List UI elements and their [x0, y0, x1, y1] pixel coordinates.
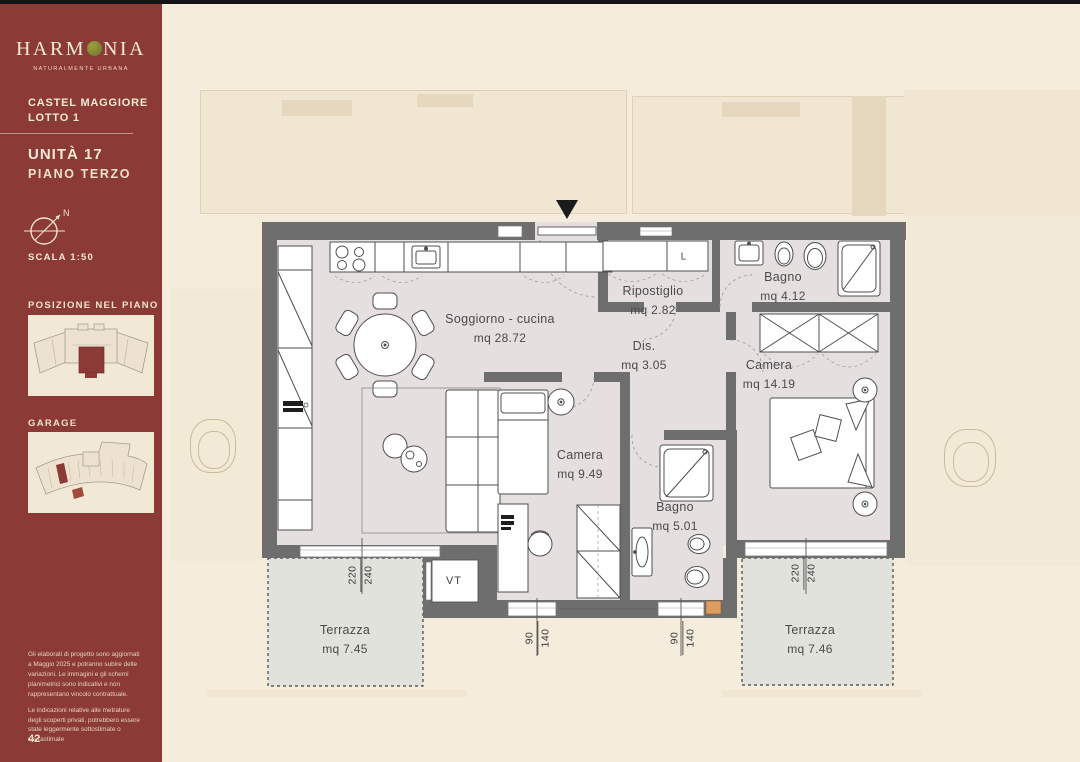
room-area: mq 28.72 — [445, 329, 555, 348]
garage-thumbnail — [28, 432, 154, 513]
disclaimer-paragraph-1: Gli elaborati di progetto sono aggiornat… — [28, 650, 142, 700]
double-bed — [770, 398, 874, 488]
tech-slot — [426, 562, 431, 600]
room-name: Bagno — [652, 498, 697, 517]
section-title-position: POSIZIONE NEL PIANO — [28, 300, 159, 311]
compass-icon: N — [22, 204, 76, 252]
floorplan-canvas: Soggiorno - cucina mq 28.72 Ripostiglio … — [162, 4, 1080, 762]
room-area: mq 2.82 — [623, 301, 684, 320]
room-area: mq 5.01 — [652, 517, 697, 536]
brand-logo: HARMNIA — [0, 38, 162, 61]
dim-value: 140 — [540, 628, 553, 647]
room-label-soggiorno: Soggiorno - cucina mq 28.72 — [445, 310, 555, 348]
wall-left — [262, 240, 277, 558]
unit-title: UNITÀ 17 — [28, 146, 103, 163]
room-label-bagno-1: Bagno mq 4.12 — [760, 268, 805, 306]
toilet-icon-2 — [685, 567, 709, 588]
position-thumbnail — [28, 315, 154, 396]
unit-floor: PIANO TERZO — [28, 167, 131, 181]
room-area: mq 3.05 — [621, 356, 666, 375]
room-label-ripostiglio: Ripostiglio mq 2.82 — [623, 282, 684, 320]
highlighted-unit — [79, 347, 104, 373]
entrance-door-leaf — [538, 227, 596, 235]
room-label-terrazza-2: Terrazza mq 7.46 — [785, 621, 835, 659]
dimension-label-left-window: 220 240 — [346, 558, 375, 592]
dim-rule — [538, 621, 539, 655]
project-name-line2: LOTTO 1 — [28, 111, 148, 126]
room-name: Bagno — [760, 268, 805, 287]
sofa — [446, 390, 500, 532]
desk — [498, 504, 528, 592]
window-left-220 — [300, 546, 440, 557]
dim-value: 220 — [346, 565, 359, 584]
highlighted-garage-spot-2 — [72, 487, 84, 499]
brand-logo-left: HARM — [16, 38, 86, 60]
dim-value: 90 — [523, 632, 536, 645]
brand-logo-right: NIA — [103, 38, 146, 60]
dim-value: 240 — [806, 563, 819, 582]
position-mini-plan — [28, 315, 154, 396]
disclaimer-paragraph-2: Le indicazioni relative alle metrature d… — [28, 706, 142, 746]
room-label-disimpegno: Dis. mq 3.05 — [621, 337, 666, 375]
room-label-camera-2: Camera mq 9.49 — [557, 446, 603, 484]
window-bottom-90-left — [508, 602, 556, 616]
floorplan-drawing — [162, 4, 1080, 762]
dim-rule — [361, 558, 362, 592]
desk-chair — [528, 532, 552, 556]
scale-label: SCALA 1:50 — [28, 252, 94, 263]
toilet-icon — [804, 243, 826, 270]
sink-icon-2 — [632, 528, 652, 576]
bedroom-1-furniture — [760, 314, 878, 516]
top-border — [0, 0, 1080, 4]
dimension-label-bottom-right-window: 90 140 — [668, 621, 697, 655]
dimension-label-bottom-left-window: 90 140 — [523, 621, 552, 655]
garage-mini-plan — [28, 432, 154, 513]
room-area: mq 7.46 — [785, 640, 835, 659]
room-label-terrazza-1: Terrazza mq 7.45 — [320, 621, 370, 659]
room-area: mq 14.19 — [743, 375, 795, 394]
shower-icon-2 — [660, 445, 713, 501]
room-name: Dis. — [621, 337, 666, 356]
kitchen-sink-icon — [412, 246, 440, 268]
tall-cabinets — [278, 246, 312, 530]
disclaimer-text: Gli elaborati di progetto sono aggiornat… — [28, 650, 142, 751]
bidet-icon — [775, 242, 793, 266]
dimension-label-right-window: 220 240 — [789, 556, 818, 590]
section-title-garage: GARAGE — [28, 418, 78, 429]
dim-value: 220 — [789, 563, 802, 582]
dim-rule — [683, 621, 684, 655]
shower-icon — [838, 241, 880, 296]
room-area: mq 9.49 — [557, 465, 603, 484]
dim-value: 240 — [363, 565, 376, 584]
room-name: Camera — [557, 446, 603, 465]
compass-north-label: N — [63, 208, 70, 218]
olive-icon — [87, 41, 102, 56]
project-name: CASTEL MAGGIORE LOTTO 1 — [28, 96, 148, 126]
sidebar-divider — [0, 133, 133, 134]
single-bed — [498, 390, 548, 494]
vent-square — [706, 601, 721, 614]
bidet-icon-2 — [688, 535, 710, 554]
room-name: Terrazza — [785, 621, 835, 640]
wardrobe-2 — [577, 505, 620, 598]
window-right-220 — [745, 542, 887, 556]
room-name: Ripostiglio — [623, 282, 684, 301]
sink-icon — [735, 241, 763, 265]
brand-tagline: NATURALMENTE URBANA — [0, 66, 162, 72]
dim-value: 90 — [668, 632, 681, 645]
room-label-camera-1: Camera mq 14.19 — [743, 356, 795, 394]
brochure-page: HARMNIA NATURALMENTE URBANA CASTEL MAGGI… — [0, 0, 1080, 762]
room-name: Camera — [743, 356, 795, 375]
room-name: Soggiorno - cucina — [445, 310, 555, 329]
entrance-arrow-icon — [556, 200, 578, 219]
room-area: mq 7.45 — [320, 640, 370, 659]
sidebar: HARMNIA NATURALMENTE URBANA CASTEL MAGGI… — [0, 4, 162, 762]
dim-value: 140 — [685, 628, 698, 647]
project-name-line1: CASTEL MAGGIORE — [28, 96, 148, 111]
wall-right — [890, 240, 905, 558]
electrical-box — [498, 226, 522, 237]
dim-rule — [804, 556, 805, 590]
page-number: 42 — [28, 733, 40, 745]
room-name: Terrazza — [320, 621, 370, 640]
vt-tag: VT — [446, 575, 462, 587]
room-label-bagno-2: Bagno mq 5.01 — [652, 498, 697, 536]
top-vent — [640, 227, 672, 236]
room-area: mq 4.12 — [760, 287, 805, 306]
laundry-tag: L — [681, 252, 688, 263]
